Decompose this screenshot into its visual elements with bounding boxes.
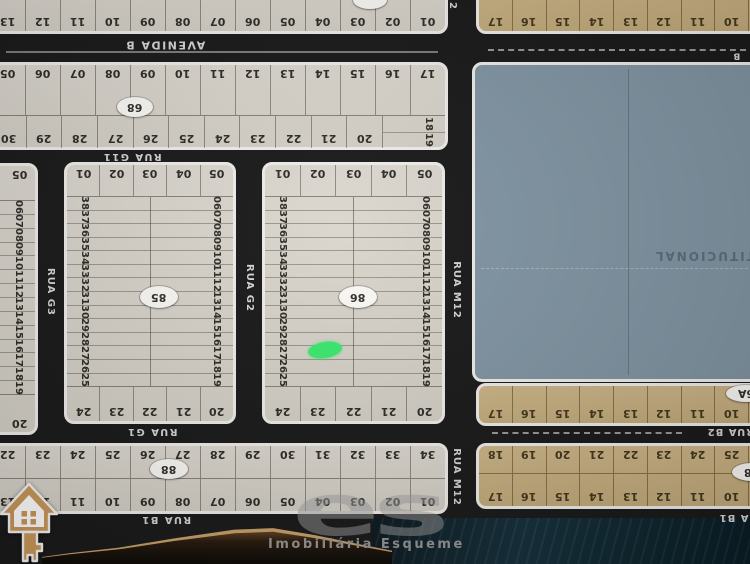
street-label-rua-m12: RUA M12 <box>451 448 461 506</box>
lot-number: 27 <box>277 346 287 360</box>
lot-number: 08 <box>175 495 190 507</box>
lot-number: 30 <box>79 305 89 319</box>
lot-cell: 22 <box>275 116 311 148</box>
lot-row: 0102030405 <box>67 165 233 196</box>
lot-number: 15 <box>555 15 570 27</box>
lot-number: 13 <box>211 291 221 305</box>
lot-number: 12 <box>13 284 23 298</box>
lot-cell: 07 <box>60 65 95 115</box>
lot-number: 32 <box>79 278 89 292</box>
lot-number: 11 <box>70 495 85 507</box>
lot-cell: 23 <box>25 446 60 478</box>
lot-number: 11 <box>70 15 85 27</box>
lot-number: 32 <box>350 448 365 460</box>
lot-number: 36 <box>79 223 89 237</box>
lot-number: 26 <box>143 132 158 144</box>
lot-number: 19 <box>423 133 433 147</box>
lot-cell: 11 <box>60 0 95 31</box>
lot-number: 23 <box>250 132 265 144</box>
lot-number: 21 <box>381 405 396 417</box>
lot-number: 37 <box>277 210 287 224</box>
lot-number: 09 <box>140 67 155 79</box>
lot-number: 17 <box>420 346 430 360</box>
lot-cell: 12 <box>647 474 681 506</box>
lot-number: 14 <box>589 407 604 419</box>
house-key-icon <box>0 481 60 564</box>
lot-number: 13 <box>420 291 430 305</box>
lot-number: 10 <box>724 490 739 502</box>
lot-number: 37 <box>79 210 89 224</box>
lot-number: 38 <box>79 196 89 210</box>
street-label-avenida-b: AVENIDA B <box>125 40 205 51</box>
brand-logo-glyphs: es <box>292 482 443 540</box>
lot-cell: 01 <box>67 165 99 196</box>
lot-number: 23 <box>310 405 325 417</box>
lot-number: 24 <box>70 448 85 460</box>
lot-cell: 04 <box>371 165 407 196</box>
lot-cell: 10 <box>95 479 130 511</box>
lot-number: 28 <box>79 332 89 346</box>
lot-number: 16 <box>521 15 536 27</box>
lot-number: 11 <box>211 264 221 278</box>
lot-cell: 28 <box>61 116 97 148</box>
lot-cell: 22 <box>133 387 166 421</box>
lot-cell: 07 <box>200 0 235 31</box>
lot-number: 15 <box>13 325 23 339</box>
street-label-rua-b2: RUA B2 <box>674 424 750 438</box>
block-strip-6a: 1716151413121110 <box>476 383 750 426</box>
lot-number: 16 <box>521 407 536 419</box>
lot-cell: 14 <box>579 0 613 31</box>
lot-cell: 05 <box>406 165 442 196</box>
lot-cell: 26 <box>133 116 169 148</box>
street-centerline <box>492 432 682 434</box>
lot-number: 12 <box>420 278 430 292</box>
lot-cell: 13 <box>613 474 647 506</box>
lot-number: 13 <box>280 67 295 79</box>
lot-number: 11 <box>420 264 430 278</box>
lot-number: 23 <box>109 405 124 417</box>
lot-cell: 11 <box>200 65 235 115</box>
lot-number: 33 <box>79 264 89 278</box>
lot-cell: 16 <box>512 474 546 506</box>
street-label-rua-m12-fragment: 2 <box>447 2 457 10</box>
lot-row: 1819202122232425 <box>479 446 750 473</box>
lot-cell: 16 <box>375 65 410 115</box>
block-number-oval: 85 <box>140 286 178 308</box>
lot-row: 19 <box>383 132 445 149</box>
lot-number: 26 <box>79 359 89 373</box>
lot-number: 34 <box>277 251 287 265</box>
lot-number: 06 <box>245 495 260 507</box>
lot-cell: 08 <box>165 0 200 31</box>
lot-number: 15 <box>555 490 570 502</box>
lot-cell: 03 <box>133 165 166 196</box>
lot-number: 08 <box>13 228 23 242</box>
lot-number: 21 <box>589 448 604 460</box>
street-centerline <box>6 51 438 53</box>
lot-cell: 24 <box>681 446 715 473</box>
lot-cell: 27 <box>97 116 133 148</box>
lot-cell: 15 <box>546 0 580 31</box>
lot-side-column: 1819 <box>382 116 445 148</box>
lot-cell: 15 <box>340 65 375 115</box>
lot-cell: 18 <box>479 446 512 473</box>
lot-number: 18 <box>13 367 23 381</box>
street-centerline <box>488 49 746 51</box>
lot-number: 26 <box>140 448 155 460</box>
lot-number: 17 <box>420 67 435 79</box>
lot-cell: 09 <box>130 0 165 31</box>
lot-number: 10 <box>105 495 120 507</box>
lot-number: 12 <box>656 407 671 419</box>
lot-row: 13 <box>0 297 35 311</box>
lot-cell: 17 <box>410 65 445 115</box>
lot-row: 2423222120 <box>265 387 442 421</box>
lot-number: 14 <box>589 15 604 27</box>
lot-number: 22 <box>142 405 157 417</box>
lot-number: 09 <box>140 495 155 507</box>
lot-number: 24 <box>690 448 705 460</box>
lot-number: 38 <box>277 196 287 210</box>
area-institucional-label: INSTITUCIONAL <box>644 248 750 264</box>
lot-cell: 10 <box>714 0 748 31</box>
lot-number: 34 <box>79 251 89 265</box>
lot-number: 17 <box>13 353 23 367</box>
lot-number: 19 <box>420 373 430 387</box>
lot-cell: 12 <box>647 0 681 31</box>
lot-number: 30 <box>280 448 295 460</box>
lot-cell: 29 <box>235 446 270 478</box>
lot-number: 30 <box>1 132 16 144</box>
lot-number: 06 <box>35 67 50 79</box>
lot-cell: 10 <box>95 0 130 31</box>
lot-number: 06 <box>211 196 221 210</box>
lot-number: 21 <box>176 405 191 417</box>
map-fold-line <box>481 268 750 269</box>
lot-number: 11 <box>690 15 705 27</box>
street-label-rua-b1-fragment: RUA B1 <box>686 510 750 524</box>
block-number: 86 <box>350 291 365 304</box>
lot-cell: 23 <box>99 387 132 421</box>
lot-number: 08 <box>105 67 120 79</box>
lot-number: 06 <box>245 15 260 27</box>
lot-row: 1716151413121110 <box>479 474 750 506</box>
lot-number: 33 <box>277 264 287 278</box>
lot-number: 14 <box>211 305 221 319</box>
block-number-oval: 88 <box>150 459 188 479</box>
lot-number: 16 <box>521 490 536 502</box>
lot-number: 04 <box>315 15 330 27</box>
block-number: 68 <box>744 466 750 479</box>
block-number: 85 <box>151 291 166 304</box>
lot-row: 1716151413121110 <box>479 386 750 423</box>
lot-cell: 06 <box>25 65 60 115</box>
lot-number: 28 <box>210 448 225 460</box>
lot-cell: 28 <box>200 446 235 478</box>
lot-row: 08 <box>0 228 35 242</box>
lot-row: 05060708091011121314151617 <box>0 65 445 115</box>
lot-row: 15 <box>0 325 35 339</box>
lot-cell: 06 <box>235 479 270 511</box>
lot-cell: 23 <box>239 116 275 148</box>
lot-number: 16 <box>211 332 221 346</box>
lot-number: 19 <box>521 448 536 460</box>
lot-number: 29 <box>36 132 51 144</box>
lot-number: 15 <box>420 319 430 333</box>
lot-number: 36 <box>277 223 287 237</box>
lot-cell: 12 <box>647 386 681 423</box>
lot-cell: 14 <box>305 65 340 115</box>
lot-cell: 20 <box>546 446 580 473</box>
lot-number: 24 <box>215 132 230 144</box>
block-quadra-68: 05060708091011121314151617 3029282726252… <box>0 62 448 150</box>
lot-cell: 22 <box>335 387 371 421</box>
lot-number: 20 <box>357 132 372 144</box>
lot-number: 11 <box>690 490 705 502</box>
lot-number: 28 <box>277 332 287 346</box>
lot-number: 13 <box>623 15 638 27</box>
lot-row: 18 <box>0 366 35 380</box>
lot-number: 14 <box>589 490 604 502</box>
lot-number: 32 <box>277 278 287 292</box>
lot-number: 27 <box>175 448 190 460</box>
lot-number: 25 <box>724 448 739 460</box>
lot-row: 07 <box>0 214 35 228</box>
lot-cell: 13 <box>613 0 647 31</box>
lot-number: 03 <box>142 167 157 179</box>
lot-cell: 30 <box>0 116 26 148</box>
lot-number: 18 <box>423 117 433 131</box>
lot-number: 35 <box>79 237 89 251</box>
lot-cell: 05 <box>200 165 233 196</box>
lot-cell: 21 <box>311 116 347 148</box>
lot-number: 07 <box>13 214 23 228</box>
lot-number: 31 <box>79 291 89 305</box>
lot-number: 03 <box>346 167 361 179</box>
lot-number: 20 <box>209 405 224 417</box>
lot-number: 09 <box>211 237 221 251</box>
lot-number: 02 <box>310 167 325 179</box>
lot-number: 12 <box>656 15 671 27</box>
lot-row: 06 <box>0 201 35 214</box>
lot-number: 04 <box>176 167 191 179</box>
lot-number: 05 <box>0 67 15 79</box>
lot-number: 29 <box>245 448 260 460</box>
lot-cell: 15 <box>546 474 580 506</box>
lot-cell: 11 <box>60 479 95 511</box>
lot-number: 13 <box>0 15 15 27</box>
lot-number: 16 <box>420 332 430 346</box>
area-institucional <box>472 62 750 382</box>
lot-number: 01 <box>420 15 435 27</box>
lot-cell: 09 <box>130 479 165 511</box>
lot-cell: 20 <box>346 116 382 148</box>
lot-row: 11 <box>0 269 35 283</box>
lot-number: 27 <box>108 132 123 144</box>
lot-number: 10 <box>724 15 739 27</box>
lot-cell: 17 <box>479 0 512 31</box>
lot-row: 18 <box>383 116 445 132</box>
lot-cell: 21 <box>166 387 199 421</box>
lot-number: 17 <box>488 15 503 27</box>
street-label-rua-b1: RUA B1 <box>141 514 191 524</box>
street-label-rua-m12: RUA M12 <box>451 261 461 319</box>
lot-number: 26 <box>277 359 287 373</box>
lot-number: 10 <box>211 251 221 265</box>
lot-number: 11 <box>690 407 705 419</box>
lot-cell: 10 <box>165 65 200 115</box>
lot-number: 05 <box>12 168 27 180</box>
lot-cell: 12 <box>25 0 60 31</box>
lot-number: 01 <box>76 167 91 179</box>
lot-number: 25 <box>277 373 287 387</box>
lot-side-column: 0607080910111213141516171819 <box>0 201 35 394</box>
lot-number: 02 <box>109 167 124 179</box>
lot-number: 14 <box>315 67 330 79</box>
lot-number: 19 <box>211 373 221 387</box>
lot-cell: 14 <box>579 386 613 423</box>
plat-map-photo: 13121110090807060504030201 1716151413121… <box>0 0 750 564</box>
lot-cell: 13 <box>613 386 647 423</box>
lot-cell: 02 <box>300 165 336 196</box>
lot-number: 06 <box>420 196 430 210</box>
lot-cell: 24 <box>60 446 95 478</box>
lot-cell: 24 <box>204 116 240 148</box>
lot-cell: 12 <box>235 65 270 115</box>
street-label-rua-g11: RUA G11 <box>102 151 161 161</box>
block-number-oval: 68 <box>117 97 153 117</box>
lot-cell: 13 <box>0 0 25 31</box>
street-label-rua-g2: RUA G2 <box>244 264 254 312</box>
street-label-rua-g3: RUA G3 <box>45 268 55 316</box>
lot-cell: 03 <box>335 165 371 196</box>
lot-number: 07 <box>420 210 430 224</box>
lot-number: 07 <box>70 67 85 79</box>
lot-number: 08 <box>175 15 190 27</box>
lot-number: 13 <box>13 297 23 311</box>
lot-row: 19 <box>0 380 35 394</box>
lot-row: 2423222120 <box>67 387 233 421</box>
lot-number: 10 <box>105 15 120 27</box>
lot-number: 31 <box>315 448 330 460</box>
lot-number: 22 <box>0 448 15 460</box>
lot-number: 25 <box>105 448 120 460</box>
lot-row: 17 <box>0 352 35 366</box>
lot-cell: 24 <box>67 387 99 421</box>
lot-row: 14 <box>0 311 35 325</box>
lot-number: 09 <box>420 237 430 251</box>
lot-number: 13 <box>623 490 638 502</box>
lot-cell: 23 <box>300 387 336 421</box>
lot-number: 20 <box>417 405 432 417</box>
block-number: 6A <box>738 387 750 400</box>
lot-number: 02 <box>385 15 400 27</box>
lot-number: 11 <box>13 270 23 284</box>
lot-cell: 20 <box>406 387 442 421</box>
lot-number: 13 <box>623 407 638 419</box>
lot-number: 10 <box>724 407 739 419</box>
lot-number: 29 <box>79 319 89 333</box>
lot-cell: 02 <box>99 165 132 196</box>
lot-row: 1716151413121110 <box>479 0 750 31</box>
lot-number: 22 <box>286 132 301 144</box>
lot-number: 21 <box>321 132 336 144</box>
block-strip-top-right: 1716151413121110 <box>476 0 750 34</box>
lot-number: 12 <box>245 67 260 79</box>
lot-number: 10 <box>175 67 190 79</box>
lot-number: 15 <box>211 319 221 333</box>
lot-number: 06 <box>13 200 23 214</box>
lot-number: 35 <box>277 237 287 251</box>
lot-number: 15 <box>350 67 365 79</box>
lot-cell: 06 <box>235 0 270 31</box>
lot-cell: 25 <box>168 116 204 148</box>
lot-cell: 15 <box>546 386 580 423</box>
lot-number: 25 <box>79 373 89 387</box>
lot-number: 18 <box>211 359 221 373</box>
lot-number: 09 <box>13 242 23 256</box>
block-quadra-68b: 1819202122232425 1716151413121110 <box>476 443 750 509</box>
street-label-rua-g1: RUA G1 <box>127 426 178 436</box>
lot-number: 01 <box>275 167 290 179</box>
lot-row: 10 <box>0 255 35 269</box>
lot-number: 08 <box>420 223 430 237</box>
lot-number: 07 <box>210 495 225 507</box>
lot-number: 20 <box>12 417 27 429</box>
lot-number: 22 <box>346 405 361 417</box>
lot-number: 17 <box>488 490 503 502</box>
lot-cell: 05 <box>270 0 305 31</box>
lot-number: 12 <box>35 15 50 27</box>
street-label-avenida-b-fragment: B <box>732 51 740 60</box>
lot-cell: 22 <box>0 446 25 478</box>
lot-cell: 01 <box>410 0 445 31</box>
lot-number: 17 <box>211 346 221 360</box>
lot-number: 12 <box>211 278 221 292</box>
lot-cell: 16 <box>512 386 546 423</box>
lot-number: 04 <box>381 167 396 179</box>
lot-number: 16 <box>385 67 400 79</box>
lot-number: 12 <box>656 490 671 502</box>
lot-cell: 17 <box>479 474 512 506</box>
block-number: 68 <box>127 101 142 114</box>
lot-number: 18 <box>420 359 430 373</box>
lot-number: 05 <box>280 15 295 27</box>
lot-cell: 04 <box>166 165 199 196</box>
lot-cell: 20 <box>200 387 233 421</box>
lot-cell: 01 <box>265 165 300 196</box>
lot-number: 11 <box>210 67 225 79</box>
lot-number: 18 <box>488 448 503 460</box>
lot-cell: 25 <box>95 446 130 478</box>
lot-number: 10 <box>420 251 430 265</box>
block-number: 88 <box>161 463 176 476</box>
lot-number: 34 <box>420 448 435 460</box>
lot-cell: 04 <box>305 0 340 31</box>
lot-cell: 14 <box>579 474 613 506</box>
lot-cell: 21 <box>579 446 613 473</box>
lot-number: 30 <box>277 305 287 319</box>
lot-number: 15 <box>555 407 570 419</box>
lot-number: 14 <box>13 311 23 325</box>
lot-number: 31 <box>277 291 287 305</box>
lot-cell: 29 <box>26 116 62 148</box>
lot-cell: 11 <box>681 474 715 506</box>
lot-cell: 11 <box>681 0 715 31</box>
lot-row: 09 <box>0 242 35 256</box>
lot-number: 29 <box>277 319 287 333</box>
